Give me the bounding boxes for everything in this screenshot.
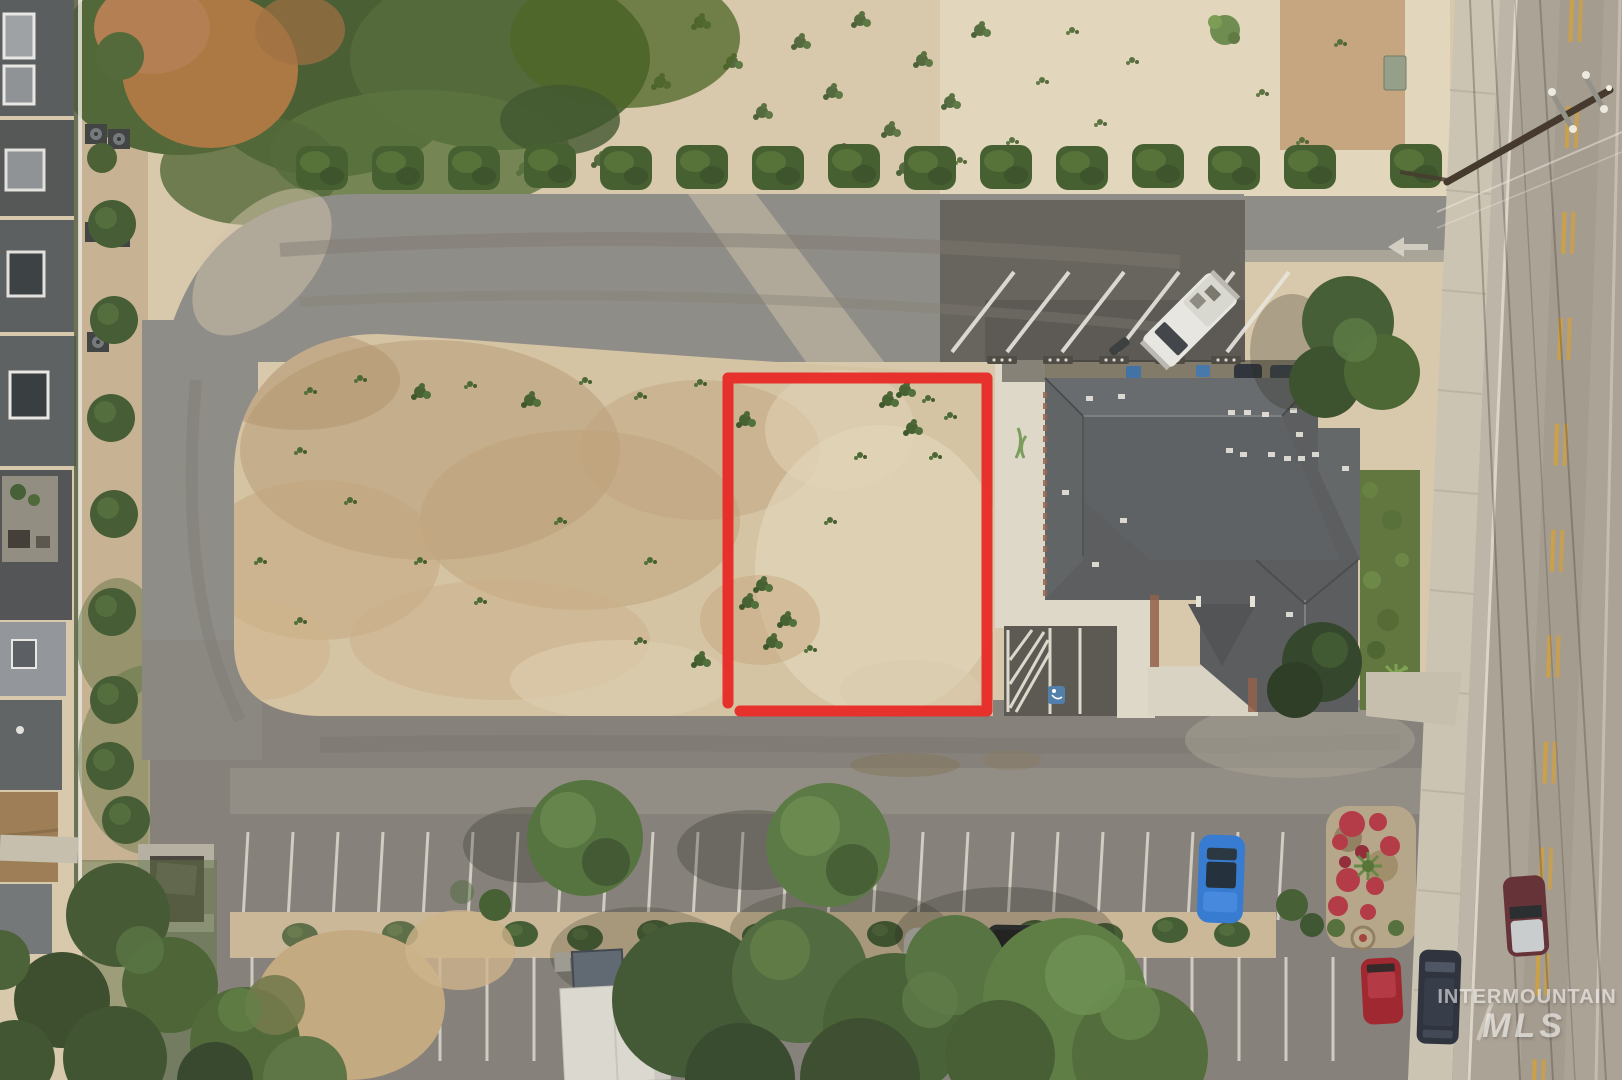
aerial-photo-canvas: INTERMOUNTAIN MLS — [0, 0, 1622, 1080]
aerial-photo: INTERMOUNTAIN MLS — [0, 0, 1622, 1080]
photo-haze — [0, 0, 1622, 1080]
